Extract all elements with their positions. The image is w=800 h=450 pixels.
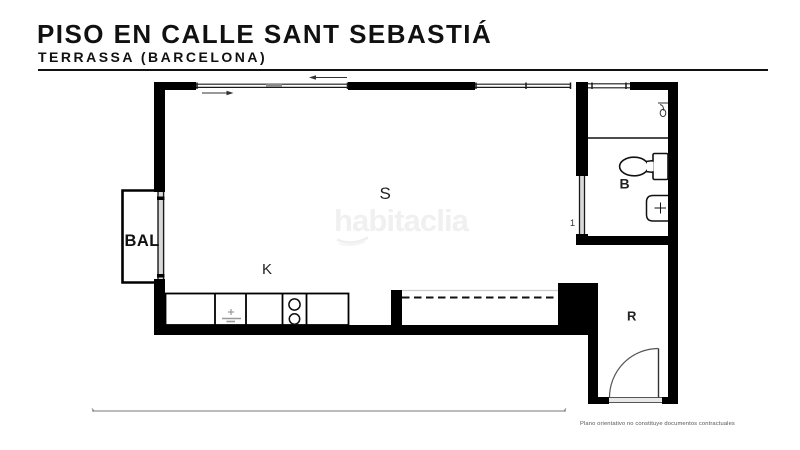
- svg-text:Plano orientativo no constituy: Plano orientativo no constituye document…: [580, 421, 735, 427]
- svg-text:S: S: [380, 184, 391, 203]
- svg-text:B: B: [620, 176, 630, 192]
- svg-text:BAL: BAL: [125, 232, 160, 250]
- svg-text:1: 1: [570, 218, 575, 228]
- svg-text:K: K: [262, 261, 272, 278]
- svg-text:R: R: [627, 309, 637, 324]
